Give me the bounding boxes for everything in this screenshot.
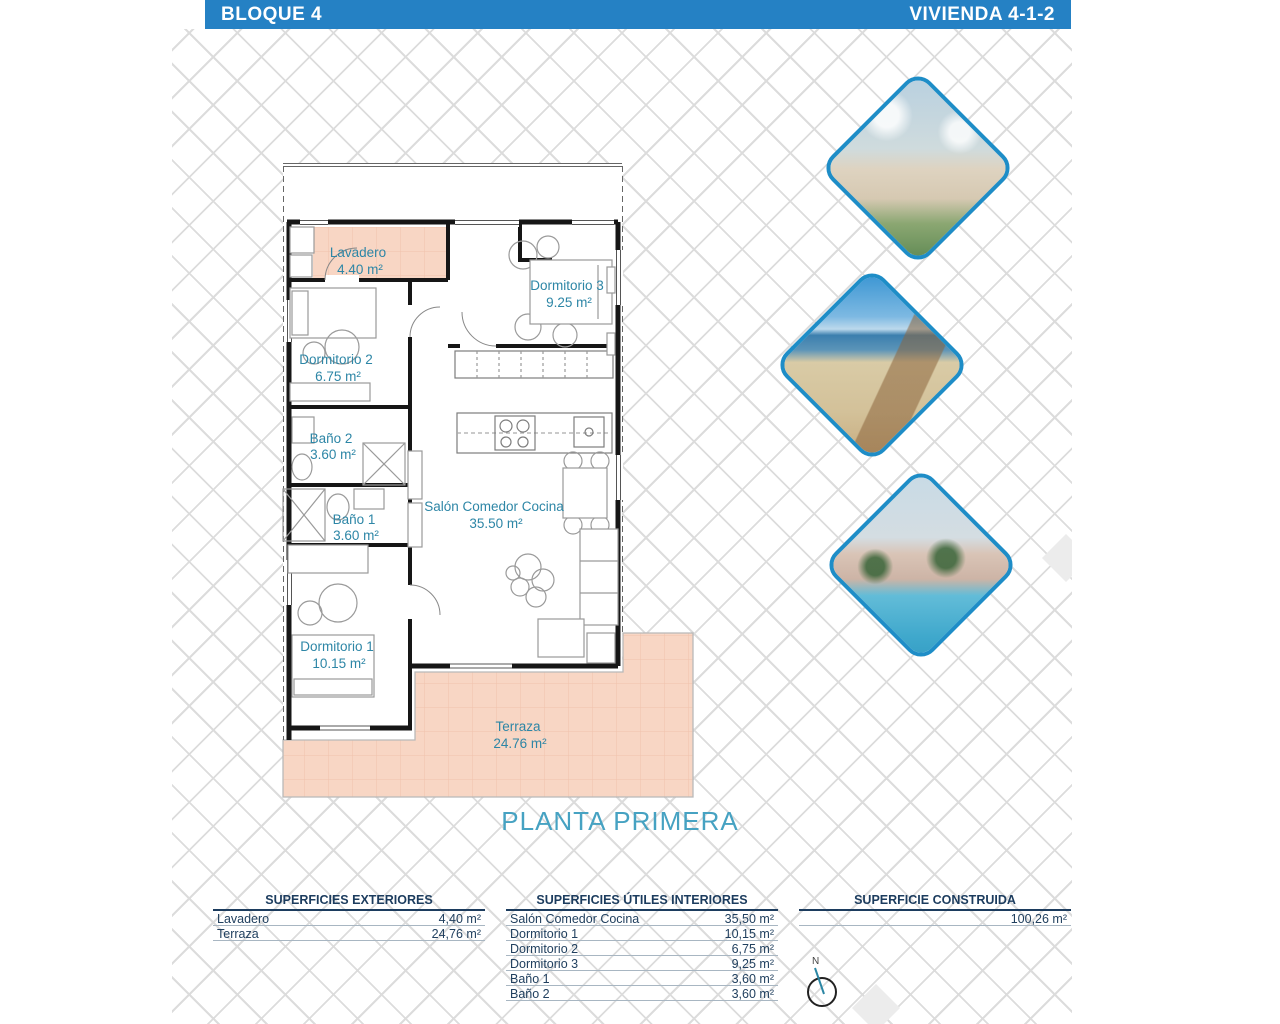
svg-text:Lavadero: Lavadero [330, 245, 386, 260]
svg-text:Terraza: Terraza [495, 719, 541, 734]
svg-text:Baño 1: Baño 1 [333, 512, 376, 527]
svg-text:35.50 m²: 35.50 m² [469, 516, 523, 531]
svg-text:Dormitorio 1: Dormitorio 1 [300, 639, 374, 654]
table-row: Salón Comedor Cocina 35,50 m² [506, 911, 778, 926]
svg-text:10.15 m²: 10.15 m² [312, 656, 366, 671]
table-title: SUPERFICIES EXTERIORES [213, 893, 485, 911]
table-row: Dormitorio 1 10,15 m² [506, 926, 778, 941]
unit-title: VIVIENDA 4-1-2 [909, 4, 1055, 26]
floor-title: PLANTA PRIMERA [480, 806, 760, 837]
svg-text:Baño 2: Baño 2 [310, 431, 353, 446]
block-title: BLOQUE 4 [221, 4, 322, 26]
table-row: Dormitorio 3 9,25 m² [506, 956, 778, 971]
svg-text:Dormitorio 3: Dormitorio 3 [530, 278, 604, 293]
lattice-filled-cell [852, 984, 900, 1024]
table-row: 100,26 m² [799, 911, 1071, 926]
svg-text:24.76 m²: 24.76 m² [493, 736, 547, 751]
plan-sheet: BLOQUE 4 VIVIENDA 4-1-2 [0, 0, 1280, 1024]
svg-text:3.60 m²: 3.60 m² [333, 528, 379, 543]
svg-text:6.75 m²: 6.75 m² [315, 369, 361, 384]
table-row: Baño 2 3,60 m² [506, 986, 778, 1001]
header-bar: BLOQUE 4 VIVIENDA 4-1-2 [205, 0, 1071, 29]
svg-text:4.40 m²: 4.40 m² [337, 262, 383, 277]
north-compass: N [798, 952, 858, 1016]
table-row: Lavadero 4,40 m² [213, 911, 485, 926]
table-superficies-exteriores: SUPERFICIES EXTERIORES Lavadero 4,40 m² … [213, 893, 485, 941]
svg-text:3.60 m²: 3.60 m² [310, 447, 356, 462]
room-label-bano-1: Baño 1 3.60 m² [333, 512, 380, 543]
svg-text:9.25 m²: 9.25 m² [546, 295, 592, 310]
table-row: Baño 1 3,60 m² [506, 971, 778, 986]
room-label-bano-2: Baño 2 3.60 m² [310, 431, 357, 462]
compass-icon [798, 952, 858, 1016]
table-superficies-interiores: SUPERFICIES ÚTILES INTERIORES Salón Come… [506, 893, 778, 1001]
lattice-filled-cell [1042, 534, 1072, 582]
svg-text:Dormitorio 2: Dormitorio 2 [299, 352, 373, 367]
table-row: Dormitorio 2 6,75 m² [506, 941, 778, 956]
floor-plan: Lavadero 4.40 m² Dormitorio 3 9.25 m² Do… [280, 155, 700, 805]
table-title: SUPERFICIES ÚTILES INTERIORES [506, 893, 778, 911]
svg-text:Salón Comedor Cocina: Salón Comedor Cocina [424, 499, 564, 514]
table-superficie-construida: SUPERFICIE CONSTRUIDA 100,26 m² [799, 893, 1071, 926]
table-title: SUPERFICIE CONSTRUIDA [799, 893, 1071, 911]
table-row: Terraza 24,76 m² [213, 926, 485, 941]
